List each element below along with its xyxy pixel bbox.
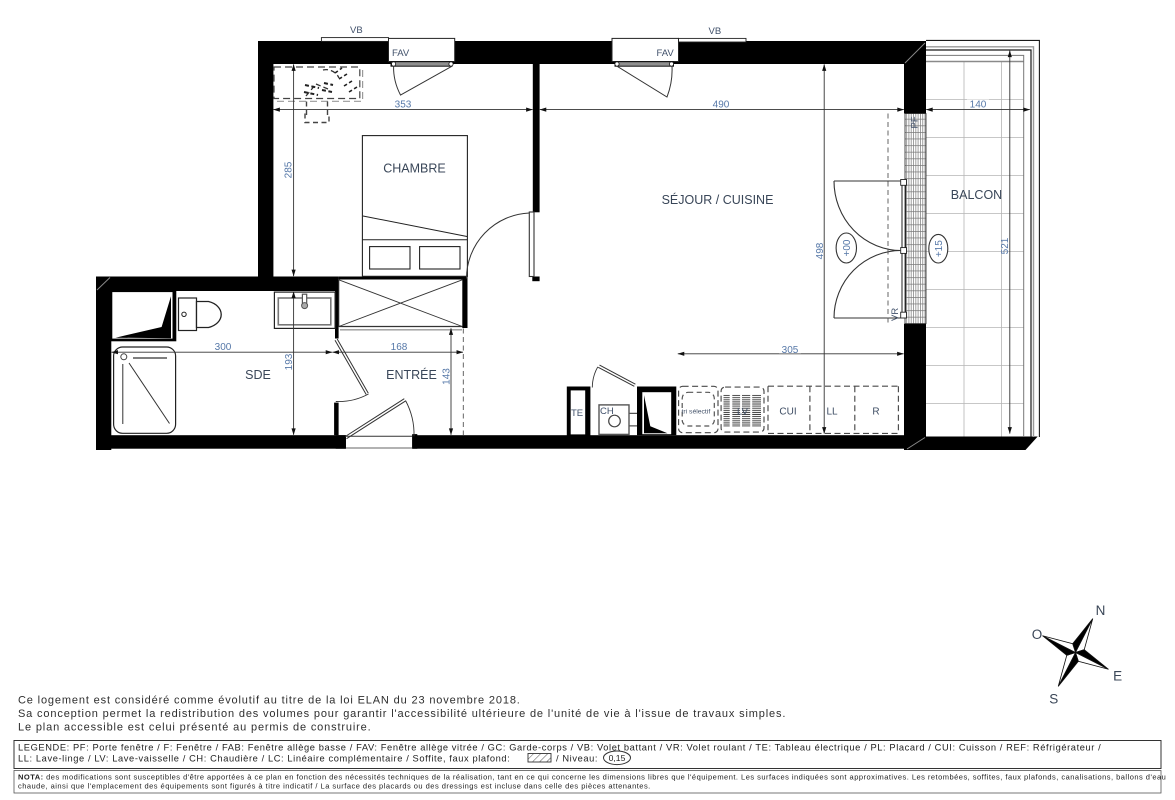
svg-text:TE: TE [571, 408, 583, 419]
svg-text:BALCON: BALCON [951, 188, 1002, 202]
svg-text:SDE: SDE [245, 368, 271, 382]
svg-text:353: 353 [395, 100, 412, 111]
svg-text:VR: VR [890, 308, 901, 321]
svg-text:LL: Lave-linge / LV: Lave-vais: LL: Lave-linge / LV: Lave-vaisselle / CH… [18, 754, 510, 764]
svg-text:CH: CH [600, 406, 614, 417]
svg-text:LEGENDE: PF: Porte fenêtre / F: LEGENDE: PF: Porte fenêtre / F: Fenêtre … [18, 743, 1101, 753]
svg-text:PF: PF [910, 116, 921, 128]
svg-text:193: 193 [284, 353, 295, 370]
svg-text:Sa conception permet la redist: Sa conception permet la redistribution d… [18, 708, 786, 720]
svg-text:SÉJOUR / CUISINE: SÉJOUR / CUISINE [662, 192, 774, 207]
svg-text:+00: +00 [842, 239, 853, 256]
svg-text:N: N [1096, 603, 1106, 618]
svg-text:NOTA: des modifications sont s: NOTA: des modifications sont susceptible… [18, 773, 1166, 782]
svg-text:168: 168 [391, 342, 408, 353]
svg-text:ENTRÉE: ENTRÉE [386, 367, 437, 382]
svg-text:VB: VB [709, 26, 722, 37]
svg-text:FAV: FAV [392, 48, 410, 59]
svg-text:CUI: CUI [779, 407, 796, 418]
svg-text:LL: LL [826, 407, 838, 418]
svg-text:+15: +15 [934, 240, 945, 257]
svg-text:tri sélectif: tri sélectif [682, 409, 711, 416]
svg-text:LV: LV [737, 407, 749, 418]
svg-text:S: S [1049, 692, 1058, 707]
svg-text:O: O [1032, 627, 1043, 642]
svg-text:140: 140 [970, 100, 987, 111]
svg-text:chaude, ainsi que l'emplacemen: chaude, ainsi que l'emplacement des équi… [18, 782, 651, 791]
svg-text:300: 300 [215, 342, 232, 353]
svg-text:E: E [1113, 669, 1122, 684]
svg-text:521: 521 [1000, 237, 1011, 254]
svg-text:R: R [872, 407, 879, 418]
svg-text:498: 498 [815, 242, 826, 259]
svg-text:FAV: FAV [657, 48, 675, 59]
svg-text:Ce logement est considéré comm: Ce logement est considéré comme évolutif… [18, 695, 521, 707]
svg-text:CHAMBRE: CHAMBRE [383, 162, 446, 176]
svg-text:305: 305 [782, 345, 799, 356]
svg-text:143: 143 [441, 368, 452, 385]
svg-text:/ Niveau:: / Niveau: [556, 754, 598, 764]
svg-text:490: 490 [713, 100, 730, 111]
svg-text:285: 285 [284, 161, 295, 178]
svg-text:0,15: 0,15 [609, 753, 626, 763]
svg-text:VB: VB [350, 25, 363, 36]
svg-text:Le plan accessible est celui p: Le plan accessible est celui présenté au… [18, 722, 372, 734]
